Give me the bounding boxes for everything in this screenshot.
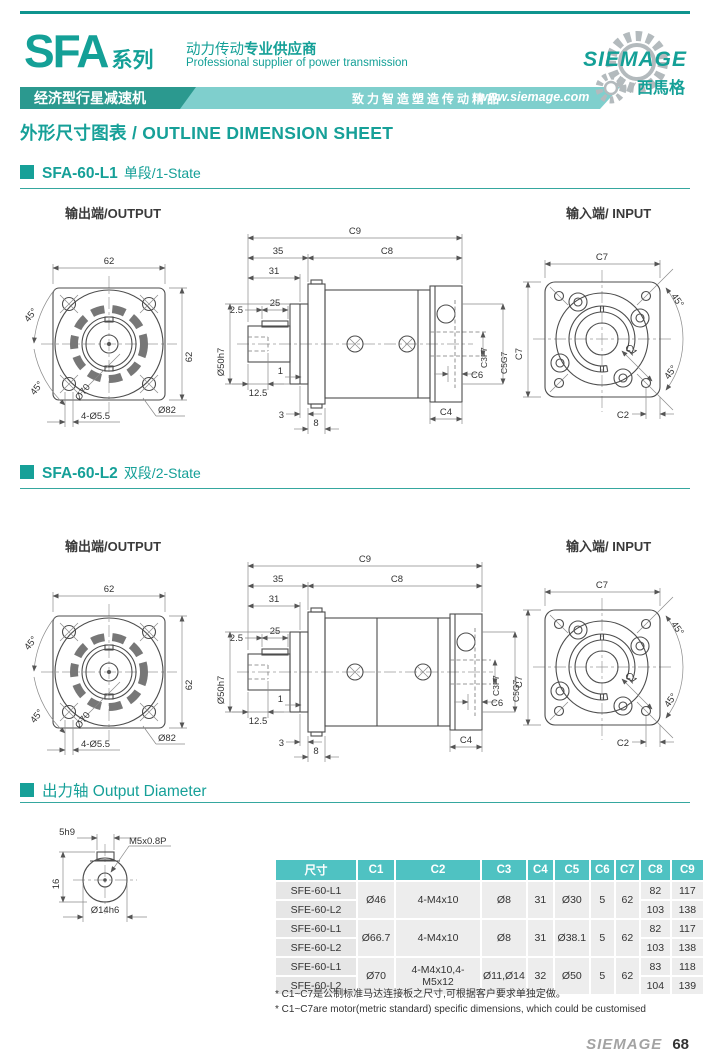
dim-label: C1 [623,342,639,358]
dim-label: C2 [617,410,629,421]
output-flange-drawing: 62 62 45° 45° Ø70 4-Ø5.5 Ø82 [25,256,195,427]
table-cell: Ø30 [554,881,590,919]
footnotes: * C1~C7是公制标准马达连接板之尺寸,可根据客户要求单独定做。 * C1~C… [275,988,646,1017]
dim-label: 31 [269,266,280,277]
model-cell: SFE-60-L1 [275,957,357,976]
column-header: C8 [640,859,671,881]
series-name: SFA [24,25,107,77]
dim-label: Ø82 [158,405,176,416]
dim-label: 2.5 [230,305,243,316]
tagline-cn-regular: 动力传动 [186,42,244,58]
dim-label: 4-Ø5.5 [81,739,110,750]
dim-label: 8 [313,746,318,757]
table-cell: Ø8 [481,919,527,957]
tagline-en: Professional supplier of power transmiss… [186,57,408,69]
dimension-drawing-l2: 62 62 45° 45° Ø70 4-Ø5.5 Ø82 [25,550,690,785]
table-cell: 82 [640,881,671,900]
brand-cn-text: 西馬格 [637,80,685,97]
side-view-drawing: C9 35 C8 31 25 2.5 Ø50h7 12.5 1 [216,226,509,434]
page-title: 外形尺寸图表 / OUTLINE DIMENSION SHEET [20,120,393,145]
dim-label: 2.5 [230,633,243,644]
dim-label: C4 [460,735,472,746]
section-rule [20,488,690,489]
dim-label: C5G7 [499,352,509,374]
dim-label: 45° [662,691,679,709]
model-cell: SFE-60-L1 [275,919,357,938]
dimension-table: 尺寸 C1 C2 C3 C4 C5 C6 C7 C8 C9 SFE-60-L1 … [274,858,705,996]
table-cell: 117 [671,881,704,900]
page-number: 68 [672,1036,689,1053]
dim-label: 45° [668,620,685,638]
tagline-cn-bold: 专业供应商 [244,42,317,58]
section-stage: 双段/2-State [124,465,201,481]
table-cell: Ø8 [481,881,527,919]
table-cell: Ø66.7 [357,919,395,957]
dim-label: 5h9 [59,827,75,838]
dim-label: C6 [491,698,503,709]
input-flange-drawing: C7 C7 45° 45° C1 C2 [514,580,686,749]
dim-label: 45° [28,707,46,725]
table-row: SFE-60-L1 Ø70 4-M4x10,4-M5x12 Ø11,Ø14 32… [275,957,704,976]
table-cell: 103 [640,938,671,957]
dim-label: C7 [514,676,525,688]
table-cell: 103 [640,900,671,919]
table-cell: 138 [671,900,704,919]
dim-label: M5x0.8P [129,836,167,847]
brand-slash: / [631,80,635,97]
footer-brand: SIEMAGE [586,1036,662,1053]
section-rule [20,802,690,803]
series-logo: SFA系列 [24,28,153,74]
table-cell: 4-M4x10 [395,919,481,957]
dim-label: 12.5 [249,716,268,727]
input-end-label: 输入端/ INPUT [566,203,651,222]
dim-label: C9 [359,554,371,565]
table-cell: 31 [527,919,554,957]
table-cell: 83 [640,957,671,976]
section-header-l2: SFA-60-L2双段/2-State [20,463,201,487]
dimension-drawing-l1: 62 62 45° 45° Ø70 4-Ø5.5 Ø82 [25,222,690,457]
column-header: C6 [590,859,615,881]
dim-label: 25 [270,626,281,637]
table-cell: 5 [590,919,615,957]
section-bullet [20,465,34,479]
table-cell: 139 [671,976,704,995]
column-header: C7 [615,859,640,881]
column-header: C3 [481,859,527,881]
input-flange-drawing: C7 C7 45° 45° C1 C2 [514,252,686,421]
dim-label: Ø82 [158,733,176,744]
dim-label: C1 [623,670,639,686]
dim-label: C7 [596,252,608,263]
model-cell: SFE-60-L2 [275,900,357,919]
section-rule [20,188,690,189]
brand-logo: SIEMAGE /西馬格 [565,22,697,108]
output-shaft-drawing: 5h9 16 M5x0.8P Ø14h6 [25,810,275,985]
dim-label: 45° [668,292,685,310]
side-view-drawing: C9 35 C8 31 25 2.5 Ø50h7 12.5 1 [216,554,521,762]
section-stage: 单段/1-State [124,165,201,181]
dim-label: C7 [514,348,525,360]
dim-label: 35 [273,246,284,257]
table-cell: 118 [671,957,704,976]
section-model: SFA-60-L2 [42,465,118,482]
model-cell: SFE-60-L1 [275,881,357,900]
tagline-cn: 动力传动专业供应商 [186,38,317,59]
section-title: 出力轴 Output Diameter [42,783,207,800]
table-row: SFE-60-L1 Ø66.7 4-M4x10 Ø8 31 Ø38.1 5 62… [275,919,704,938]
table-cell: 138 [671,938,704,957]
dim-label: Ø50h7 [216,348,227,377]
dim-label: 12.5 [249,388,268,399]
catalog-page: SFA系列 经济型行星减速机 致力智造塑造传动精品 www.siemage.co… [0,0,711,1060]
column-header: C2 [395,859,481,881]
table-cell: 117 [671,919,704,938]
footnote-en: * C1~C7are motor(metric standard) specif… [275,1003,646,1018]
table-header-row: 尺寸 C1 C2 C3 C4 C5 C6 C7 C8 C9 [275,859,704,881]
dim-label: C9 [349,226,361,237]
brand-name-cn: /西馬格 [631,74,685,98]
dim-label: C3F7 [479,347,489,368]
brand-name: SIEMAGE [583,48,687,72]
dim-label: 62 [184,680,195,691]
dim-label: 45° [28,379,46,397]
dim-label: C8 [381,246,393,257]
header-banner: 经济型行星减速机 [20,87,196,109]
dim-label: C7 [596,580,608,591]
table-cell: 4-M4x10 [395,881,481,919]
section-model: SFA-60-L1 [42,165,118,182]
table-cell: 82 [640,919,671,938]
section-bullet [20,783,34,797]
top-rule [20,11,690,14]
dim-label: 16 [51,879,62,890]
dim-label: C4 [440,407,452,418]
dim-label: C3F7 [491,675,501,696]
model-cell: SFE-60-L2 [275,938,357,957]
dim-label: 62 [104,256,115,267]
dim-label: 62 [104,584,115,595]
footnote-cn: * C1~C7是公制标准马达连接板之尺寸,可根据客户要求单独定做。 [275,988,646,1003]
dim-label: Ø14h6 [91,905,120,916]
column-header: C4 [527,859,554,881]
dim-label: 1 [278,366,283,377]
column-header: C1 [357,859,395,881]
dim-label: 4-Ø5.5 [81,411,110,422]
table-cell: Ø38.1 [554,919,590,957]
page-footer: SIEMAGE68 [586,1036,689,1054]
dim-label: 45° [662,363,679,381]
column-header: C9 [671,859,704,881]
dim-label: 25 [270,298,281,309]
dim-label: 1 [278,694,283,705]
dim-label: 3 [279,410,284,421]
table-cell: 31 [527,881,554,919]
series-suffix: 系列 [111,49,153,72]
dim-label: C8 [391,574,403,585]
dim-label: 3 [279,738,284,749]
column-header: 尺寸 [275,859,357,881]
dim-label: 8 [313,418,318,429]
section-header-output-diameter: 出力轴 Output Diameter [20,779,207,803]
output-flange-drawing: 62 62 45° 45° Ø70 4-Ø5.5 Ø82 [25,584,195,755]
dim-label: C2 [617,738,629,749]
output-end-label: 输出端/OUTPUT [65,203,161,222]
dim-label: C6 [471,370,483,381]
table-cell: Ø46 [357,881,395,919]
table-row: SFE-60-L1 Ø46 4-M4x10 Ø8 31 Ø30 5 62 82 … [275,881,704,900]
section-bullet [20,165,34,179]
dim-label: 35 [273,574,284,585]
column-header: C5 [554,859,590,881]
dim-label: 62 [184,352,195,363]
table-cell: 62 [615,881,640,919]
table-cell: 5 [590,881,615,919]
dim-label: 31 [269,594,280,605]
section-header-l1: SFA-60-L1单段/1-State [20,163,201,187]
dim-label: Ø50h7 [216,676,227,705]
table-cell: 62 [615,919,640,957]
